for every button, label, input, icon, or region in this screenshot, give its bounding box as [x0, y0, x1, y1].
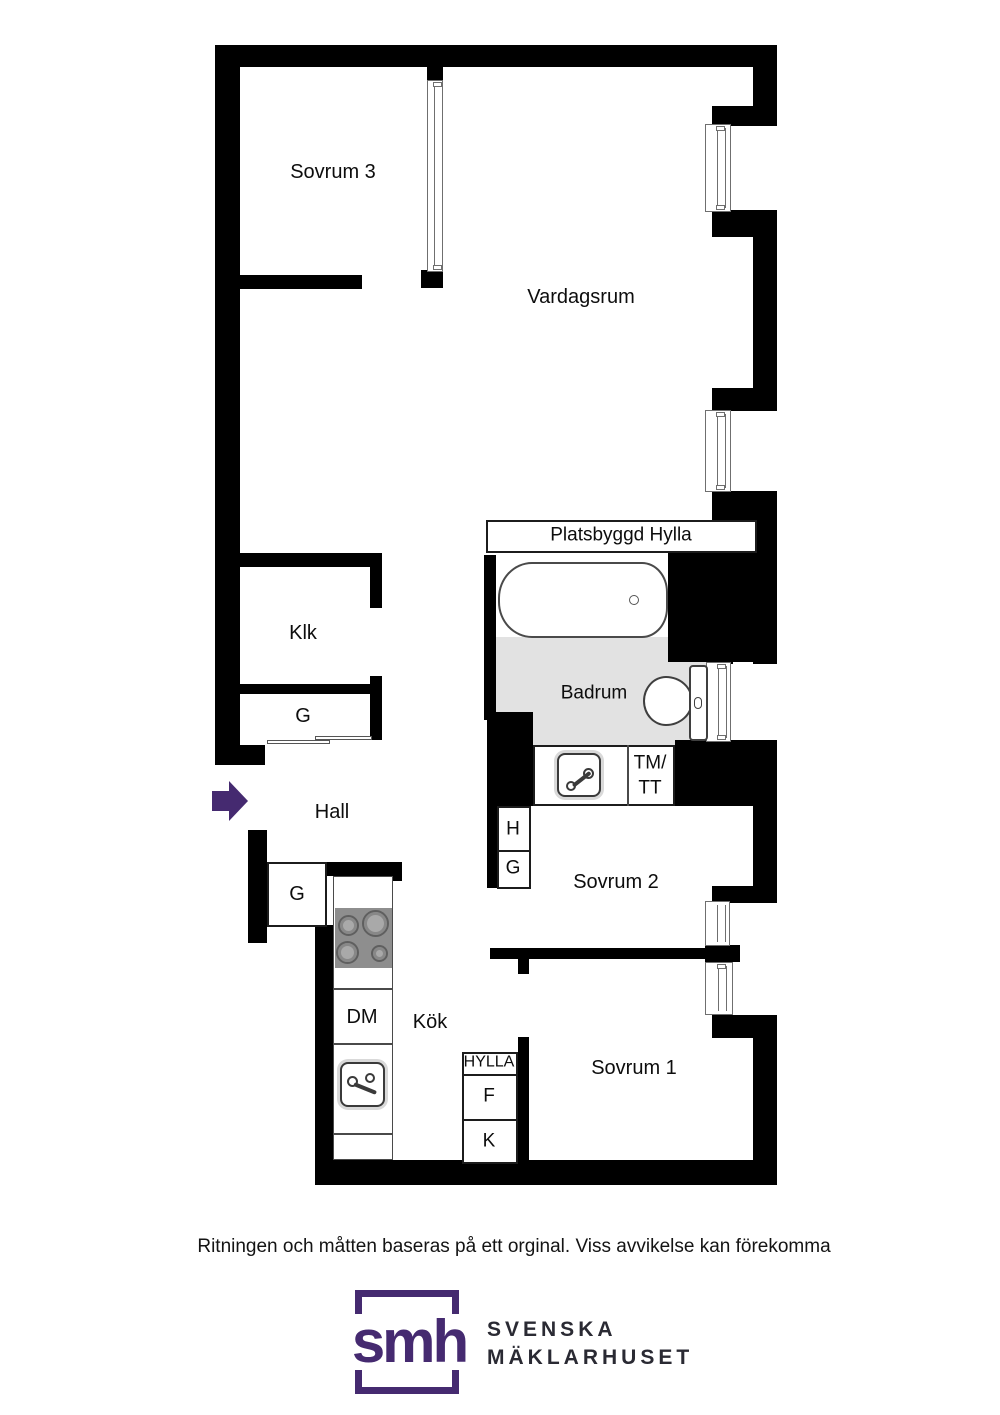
- sliding-door-sovrum3: [427, 80, 443, 272]
- laundry-divider: [627, 745, 629, 806]
- logo-monogram: smh: [349, 1314, 469, 1370]
- wall-laundry-right-block: [675, 740, 777, 806]
- label-k: K: [483, 1130, 496, 1155]
- wall-gklk-stub: [370, 676, 382, 740]
- wall-sovrum2-closet: [487, 806, 497, 888]
- wall-sovrum3-door-stub-bottom: [421, 270, 443, 288]
- window-glass: [718, 966, 727, 1011]
- klk-sliding-door: [267, 740, 330, 744]
- logo-company-name: SVENSKA MÄKLARHUSET: [487, 1316, 693, 1372]
- wall-hylla-right: [518, 1037, 529, 1162]
- label-g-klk: G: [295, 703, 311, 729]
- wall-top: [215, 45, 777, 67]
- wall-sovrum1-door-stub: [518, 959, 529, 974]
- wall-klk-divider: [233, 684, 382, 694]
- kitchen-sink-tap: [365, 1073, 375, 1083]
- door-cap: [717, 735, 726, 740]
- room-label-klk: Klk: [289, 620, 317, 646]
- wall-left-foot: [215, 745, 265, 765]
- room-label-sovrum3: Sovrum 3: [290, 159, 376, 185]
- entrance-arrow-icon: [212, 791, 230, 811]
- window-icon: [705, 962, 733, 1015]
- wall-klk-top: [233, 553, 382, 567]
- wall-left: [215, 45, 240, 765]
- wall-sovrum3-bottom: [233, 275, 362, 289]
- label-g-sovrum2: G: [506, 857, 521, 882]
- label-h-closet: H: [506, 818, 520, 843]
- window-glass: [717, 128, 726, 208]
- floorplan-page: Sovrum 3 Vardagsrum Platsbyggd Hylla Klk…: [0, 0, 1000, 1415]
- bathroom-door: [706, 662, 731, 742]
- window-cap: [716, 205, 725, 210]
- wall-bath-left: [484, 555, 496, 720]
- stove-burner: [371, 945, 388, 962]
- counter-line: [333, 988, 393, 990]
- label-platsbyggd-hylla: Platsbyggd Hylla: [550, 524, 692, 549]
- door-glass: [434, 84, 443, 268]
- stove-burner: [362, 910, 389, 937]
- window-cap: [716, 485, 725, 490]
- wall-window4-lower: [712, 1015, 777, 1038]
- wall-right-a: [753, 236, 777, 392]
- window-icon: [705, 901, 730, 946]
- label-hylla: HYLLA: [464, 1053, 515, 1074]
- room-label-vardagsrum: Vardagsrum: [527, 284, 634, 310]
- wall-bath-block: [668, 553, 757, 662]
- stove-burner: [338, 915, 359, 936]
- logo-name-line1: SVENSKA: [487, 1316, 693, 1344]
- wall-window2-upper: [712, 388, 777, 411]
- door-cap: [717, 664, 726, 669]
- door-cap: [433, 265, 442, 270]
- wall-kitchen-top: [327, 862, 402, 876]
- window-cap: [716, 126, 725, 131]
- wall-window1-upper: [712, 106, 777, 126]
- wall-hall: [248, 830, 267, 943]
- klk-sliding-door: [315, 736, 372, 740]
- stove-burner: [336, 941, 359, 964]
- wall-sovrum2-closet-block: [487, 712, 533, 806]
- wall-right-c: [753, 806, 777, 888]
- bathtub-icon: [498, 562, 668, 638]
- room-label-sovrum2: Sovrum 2: [573, 869, 659, 895]
- bathtub-drain: [629, 595, 639, 605]
- window-glass: [717, 905, 726, 942]
- wall-bottom: [315, 1160, 777, 1185]
- room-label-kok: Kök: [413, 1009, 447, 1035]
- label-tm-tt: TM/ TT: [634, 751, 667, 800]
- room-label-sovrum1: Sovrum 1: [591, 1055, 677, 1081]
- wall-klk-stub: [370, 553, 382, 608]
- wall-kitchen-step: [393, 873, 402, 881]
- window-icon: [705, 410, 731, 492]
- washbasin-icon: [557, 753, 601, 797]
- entrance-arrow-icon: [229, 781, 248, 821]
- label-f: F: [483, 1085, 495, 1110]
- counter-line: [333, 1043, 393, 1045]
- logo-name-line2: MÄKLARHUSET: [487, 1344, 693, 1372]
- window-cap: [716, 412, 725, 417]
- door-cap: [433, 82, 442, 87]
- room-label-hall: Hall: [315, 799, 349, 825]
- window-cap: [717, 964, 726, 969]
- room-label-badrum: Badrum: [561, 682, 628, 707]
- window-glass: [717, 414, 726, 488]
- label-g-hall: G: [289, 881, 305, 907]
- label-dm: DM: [346, 1004, 377, 1030]
- wall-kitchen-left: [315, 925, 333, 1182]
- door-glass: [718, 666, 727, 738]
- window-icon: [705, 124, 731, 212]
- wall-window1-lower: [712, 210, 777, 237]
- counter-line: [333, 1133, 393, 1135]
- disclaimer-text: Ritningen och måtten baseras på ett orgi…: [197, 1236, 830, 1258]
- wall-top-right-leg: [753, 45, 777, 111]
- toilet-flush-button: [694, 697, 702, 709]
- wall-sovrum1-sovrum2-divider: [490, 948, 713, 959]
